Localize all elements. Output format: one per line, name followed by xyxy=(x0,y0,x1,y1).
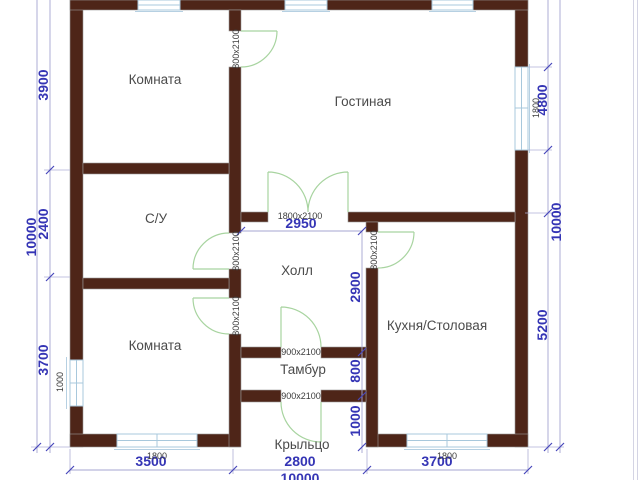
dim-tambour-800: 800 xyxy=(347,359,363,383)
room-label-kuhnya: Кухня/Столовая xyxy=(387,318,487,333)
dim-right-total-10000: 10000 xyxy=(548,202,564,241)
door-swing-bathroom xyxy=(193,233,229,269)
page-edge-lines xyxy=(634,0,638,480)
dim-right-5200: 5200 xyxy=(534,309,550,340)
window-label-left-1000: 1000 xyxy=(55,372,65,392)
door-label-bathroom: 800x2100 xyxy=(231,231,241,271)
window-label-bottom-right-1800: 1800 xyxy=(437,451,457,461)
door-swing-tambour xyxy=(281,307,321,347)
room-label-komnata-top: Комната xyxy=(129,72,182,87)
wall-segment xyxy=(321,347,366,358)
wall-segment xyxy=(473,0,528,10)
room-label-komnata-bottom: Комната xyxy=(129,338,182,353)
opening-labels: 800x2100 800x2100 800x2100 800x2100 1800… xyxy=(55,29,541,461)
wall-segment xyxy=(348,212,515,222)
wall-segment xyxy=(241,212,268,222)
wall-segment xyxy=(241,347,281,358)
wall-segment xyxy=(241,390,281,402)
wall-segment xyxy=(70,0,138,10)
wall-segment xyxy=(83,163,229,174)
room-label-krylco: Крыльцо xyxy=(274,437,329,452)
wall-segment xyxy=(70,0,83,360)
wall-segment xyxy=(229,269,241,298)
window-right xyxy=(515,67,528,150)
dim-left-3700: 3700 xyxy=(35,344,51,375)
window-top-right xyxy=(432,0,473,10)
dim-porch-1000: 1000 xyxy=(347,405,363,436)
wall-segment xyxy=(70,434,117,447)
door-swings xyxy=(193,31,414,442)
window-top-left xyxy=(138,0,180,10)
floor-plan-drawing: Комната Гостиная С/У Холл Комната Кухня/… xyxy=(0,0,640,480)
window-left xyxy=(70,360,83,406)
wall-segment xyxy=(515,150,528,447)
room-label-tambur: Тамбур xyxy=(280,362,326,377)
room-label-gostinaya: Гостиная xyxy=(335,94,392,109)
room-label-holl: Холл xyxy=(281,263,313,278)
wall-segment xyxy=(229,67,241,233)
floor-plan-page: Комната Гостиная С/У Холл Комната Кухня/… xyxy=(0,0,640,480)
wall-segment xyxy=(487,434,528,447)
wall-segment xyxy=(83,278,229,289)
wall-segment xyxy=(366,268,378,447)
door-label-porch: 900x2100 xyxy=(281,391,321,401)
door-label-room-bl: 800x2100 xyxy=(231,296,241,336)
window-bottom-right xyxy=(407,434,487,447)
wall-segment xyxy=(327,0,432,10)
window-label-right-1800: 1800 xyxy=(531,98,541,118)
wall-segment xyxy=(180,0,285,10)
window-label-bottom-left-1800: 1800 xyxy=(147,451,167,461)
door-swing-room-tl xyxy=(241,31,277,67)
dim-bottom-total-10000: 10000 xyxy=(281,470,320,480)
door-label-tambour: 900x2100 xyxy=(281,347,321,357)
door-label-double: 1800x2100 xyxy=(278,211,323,221)
dimension-lines xyxy=(31,0,638,480)
wall-segment xyxy=(229,10,241,31)
door-label-room-tl: 800x2100 xyxy=(231,29,241,69)
room-label-su: С/У xyxy=(145,211,168,226)
dim-left-3900: 3900 xyxy=(35,69,51,100)
dim-hall-2900: 2900 xyxy=(347,271,363,302)
dim-bottom-2800: 2800 xyxy=(284,453,315,469)
door-swing-porch xyxy=(281,402,321,442)
wall-segment xyxy=(321,390,366,402)
door-swing-room-bl xyxy=(193,298,229,334)
window-bottom-left xyxy=(117,434,197,447)
dim-left-total-10000: 10000 xyxy=(23,217,39,256)
door-swing-double-hall xyxy=(268,172,348,212)
window-top-center xyxy=(285,0,327,10)
door-label-kitchen: 800x2100 xyxy=(369,230,379,270)
door-swing-kitchen xyxy=(378,232,414,268)
wall-segment xyxy=(229,334,241,447)
